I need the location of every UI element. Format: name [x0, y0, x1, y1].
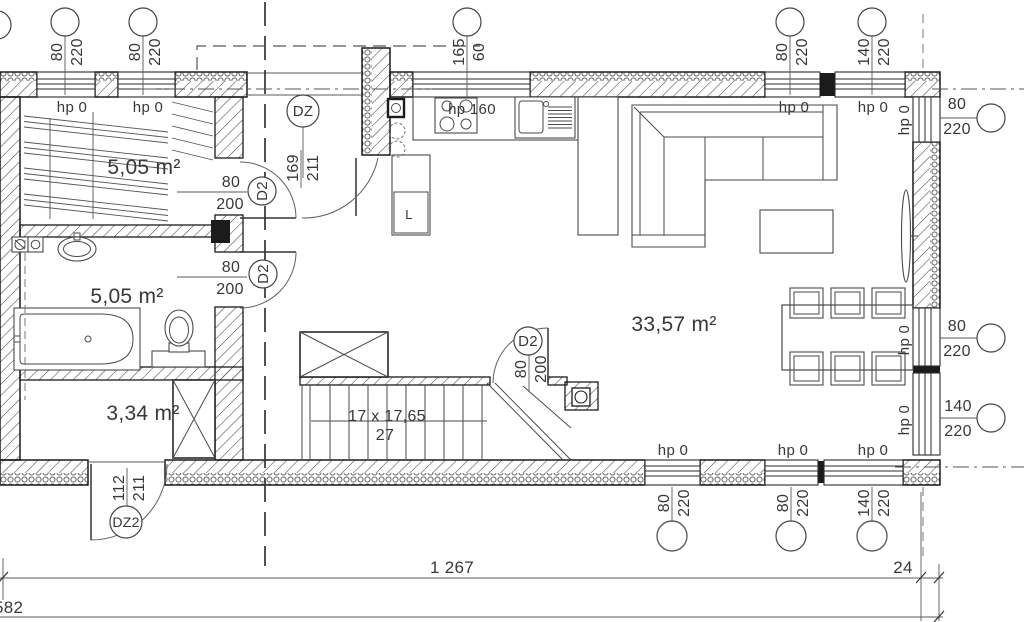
parapet-label: hp 0: [858, 99, 888, 116]
floor-plan-drawing: 5,05 m² 5,05 m² 3,34 m² 33,57 m² 17 x 17…: [0, 0, 1024, 622]
fridge-label: L: [405, 207, 413, 222]
door-tag-d2-2: D2: [255, 264, 272, 284]
kitchen-peninsula: [578, 97, 618, 235]
window-dim: 80: [127, 43, 144, 61]
door-dim: 169: [285, 154, 302, 182]
window-dim: 220: [147, 38, 164, 66]
window-dim: 220: [943, 121, 971, 138]
door-dim: 211: [305, 155, 322, 181]
window-right-3: [913, 373, 940, 455]
door-dim: 112: [111, 475, 128, 501]
kitchen-sink: [515, 97, 575, 138]
parapet-label: hp 0: [896, 405, 913, 435]
door-tag-d2-1: D2: [254, 181, 271, 201]
door-dim: 211: [131, 475, 148, 501]
window-dim: 220: [876, 489, 893, 517]
room-label-bathroom: 5,05 m²: [90, 285, 163, 308]
structural-column: [565, 382, 598, 410]
window-dim: 80: [49, 43, 66, 61]
parapet-label: hp 0: [858, 442, 888, 459]
door-dim: 200: [533, 355, 550, 383]
window-bottom-2: [765, 460, 818, 485]
window-dim: 220: [944, 423, 972, 440]
overall-dimension: 1 267: [430, 558, 474, 577]
floor-plan-sheet: 5,05 m² 5,05 m² 3,34 m² 33,57 m² 17 x 17…: [0, 0, 1024, 622]
window-dim: 60: [471, 43, 488, 61]
window-dim: 220: [943, 343, 971, 360]
window-kitchen: [413, 72, 530, 97]
meter-box: [388, 99, 404, 117]
parapet-label: hp 0: [778, 442, 808, 459]
window-dim: 220: [69, 38, 86, 66]
window-top-1: [37, 72, 95, 97]
window-dim: 80: [656, 494, 673, 512]
door-dim: 200: [216, 281, 244, 298]
parapet-label: hp 0: [896, 325, 913, 355]
window-dim: 165: [451, 38, 468, 66]
window-dim: 220: [794, 38, 811, 66]
room-label-living: 33,57 m²: [631, 313, 716, 336]
window-top-2: [118, 72, 175, 97]
window-bottom-1: [645, 460, 700, 485]
window-dim: 80: [774, 43, 791, 61]
door-dim: 80: [513, 360, 530, 378]
stair-width-label: 27: [376, 427, 394, 444]
room-label-wc: 3,34 m²: [106, 402, 179, 425]
left-dimension: 582: [0, 598, 23, 617]
stair-run-label: 17 x 17,65: [348, 408, 426, 425]
window-mullion: [820, 73, 835, 96]
door-tag-d2-3: D2: [518, 333, 538, 350]
parapet-label: hp 160: [448, 101, 496, 118]
coffee-table: [760, 210, 833, 253]
door-tag-dz2: DZ2: [112, 514, 139, 530]
window-dim: 140: [944, 398, 972, 415]
parapet-label: hp 0: [896, 105, 913, 135]
bathtub: [14, 308, 140, 370]
window-dim: 220: [795, 489, 812, 517]
room-label-wardrobe: 5,05 m²: [107, 156, 180, 179]
window-dim: 220: [876, 38, 893, 66]
window-right-2: [913, 308, 940, 366]
window-top-3: [765, 72, 820, 97]
parapet-label: hp 0: [779, 99, 809, 116]
door-dim: 80: [222, 259, 240, 276]
fridge: [392, 155, 430, 235]
parapet-label: hp 0: [658, 442, 688, 459]
window-dim: 80: [948, 318, 966, 335]
washer-symbols: [12, 237, 43, 252]
parapet-label: hp 0: [57, 99, 87, 116]
wall-dimension: 24: [893, 558, 913, 577]
window-dim: 80: [948, 96, 966, 113]
door-dim: 200: [216, 196, 244, 213]
window-dim: 80: [775, 494, 792, 512]
door-dim: 80: [222, 174, 240, 191]
window-dim: 220: [676, 489, 693, 517]
window-bottom-3: [824, 460, 903, 485]
window-dim: 140: [856, 489, 873, 517]
window-right-1: [913, 97, 940, 142]
door-tag-dz: DZ: [293, 103, 314, 120]
parapet-label: hp 0: [133, 99, 163, 116]
window-dim: 140: [856, 38, 873, 66]
shaft-hall: [300, 332, 388, 377]
window-top-4: [835, 72, 905, 97]
